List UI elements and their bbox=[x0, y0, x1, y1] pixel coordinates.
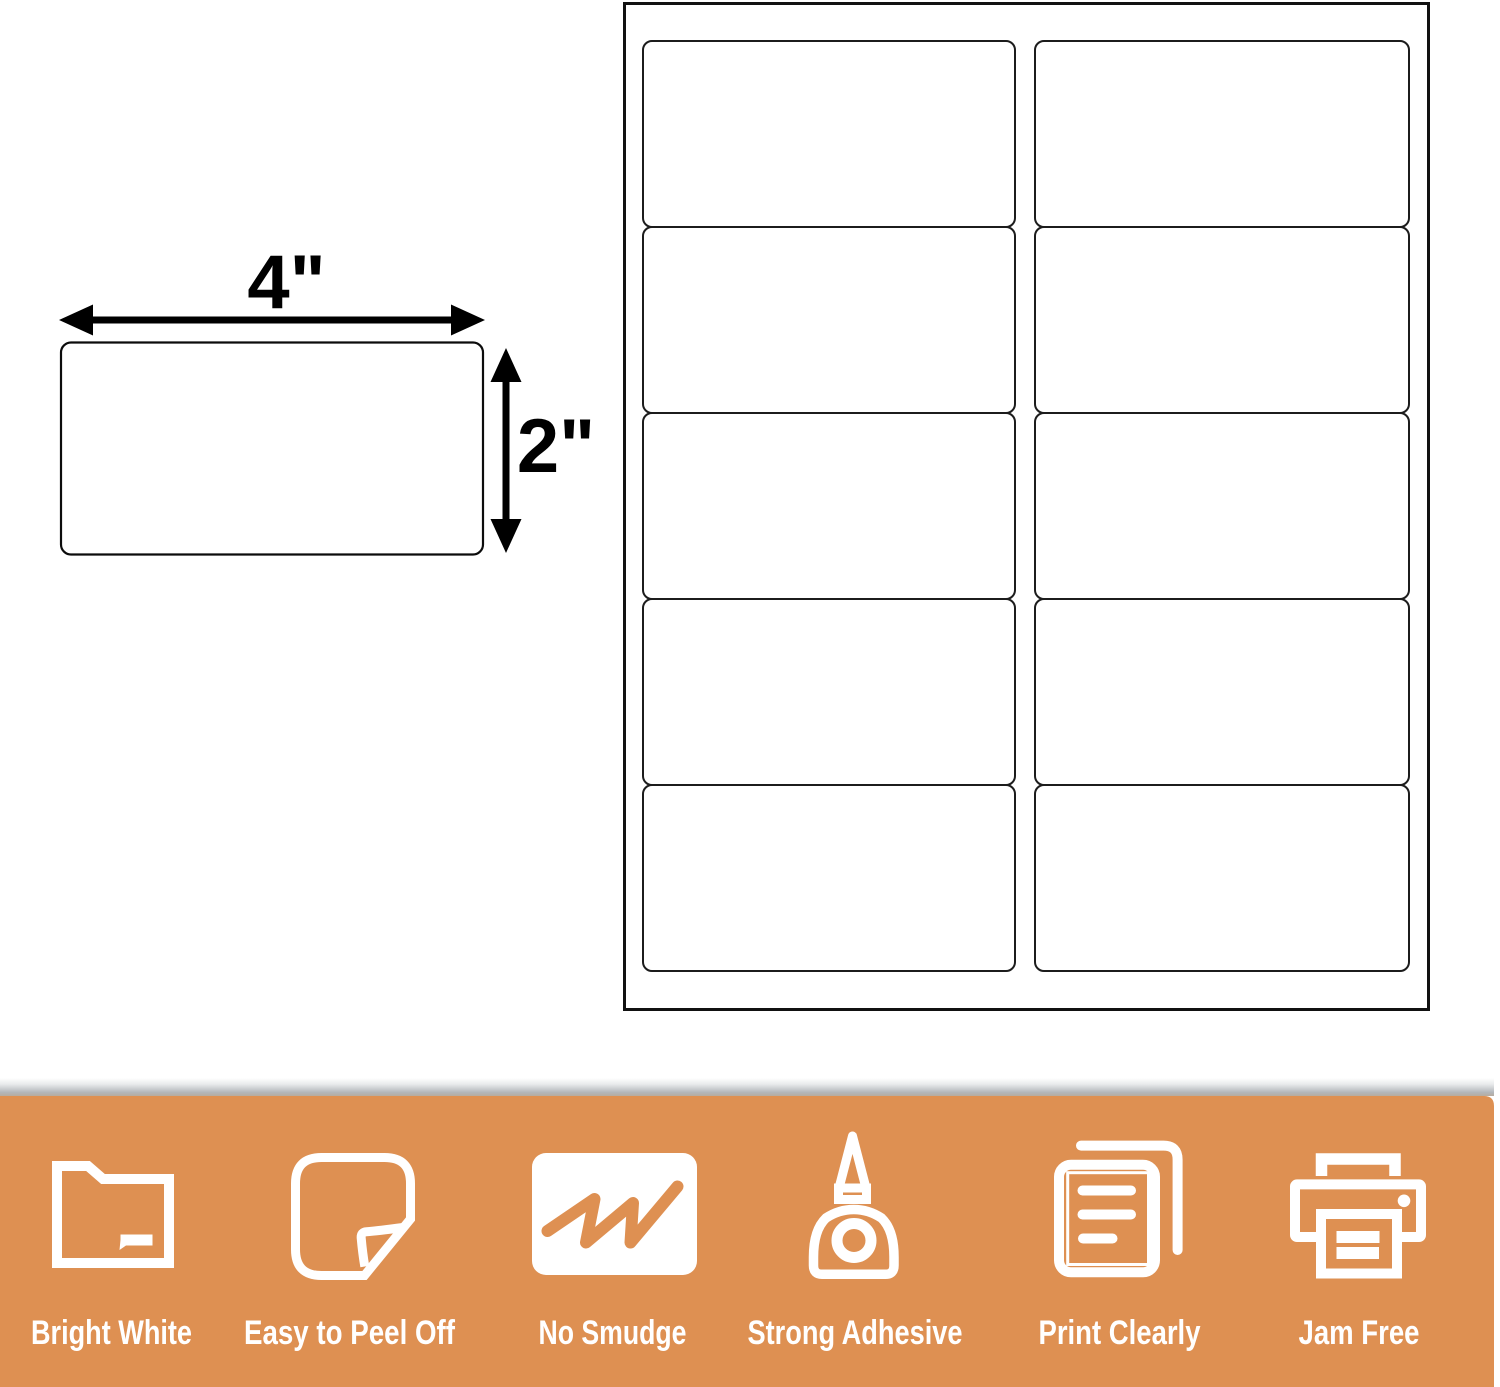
svg-text:Strong Adhesive: Strong Adhesive bbox=[748, 1314, 963, 1352]
svg-text:Jam Free: Jam Free bbox=[1299, 1314, 1420, 1352]
svg-text:2": 2" bbox=[517, 404, 595, 489]
svg-text:Print Clearly: Print Clearly bbox=[1039, 1314, 1201, 1352]
svg-text:Bright White: Bright White bbox=[31, 1314, 192, 1352]
svg-text:Easy to Peel Off: Easy to Peel Off bbox=[244, 1314, 456, 1352]
svg-text:No Smudge: No Smudge bbox=[539, 1314, 687, 1352]
svg-text:4": 4" bbox=[247, 240, 325, 325]
